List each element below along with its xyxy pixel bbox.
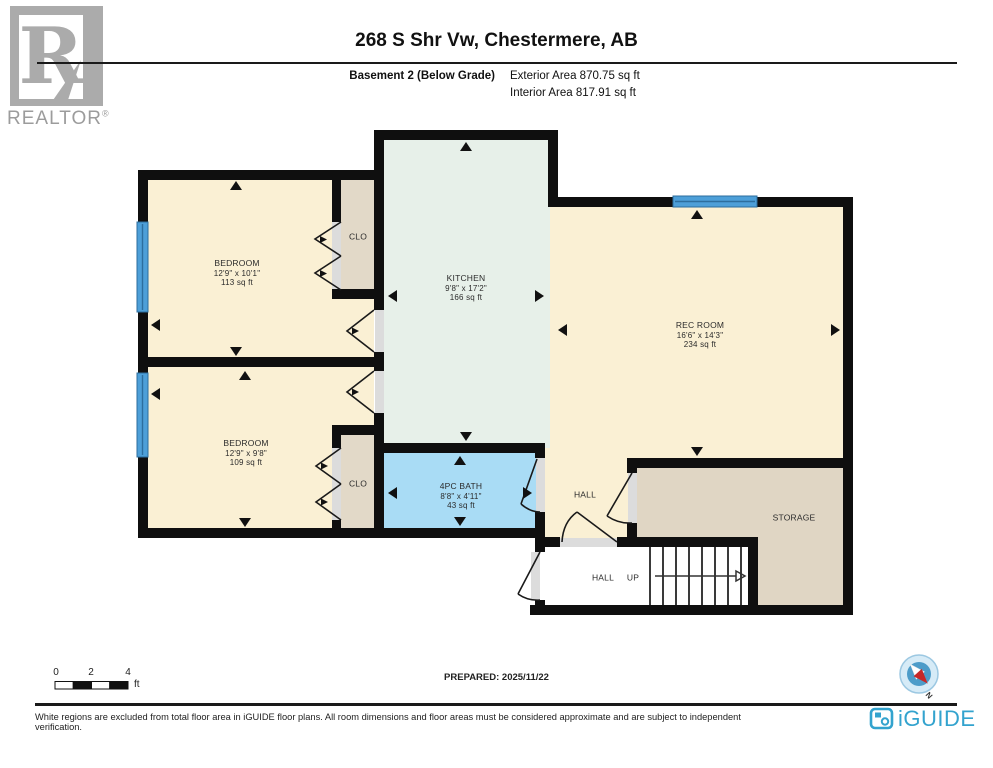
wall [530, 605, 853, 615]
room-name: BEDROOM [214, 259, 260, 269]
prepared-date: PREPARED: 2025/11/22 [0, 672, 993, 683]
room-name: HALL [592, 573, 614, 583]
wall [535, 600, 545, 615]
wall [332, 175, 341, 222]
wall [374, 130, 384, 310]
room-name: STORAGE [773, 513, 816, 523]
wall [138, 357, 384, 367]
room-area: 166 sq ft [445, 293, 487, 303]
wall [138, 528, 384, 538]
room-label-bath: 4PC BATH 8'8" x 4'11" 43 sq ft [440, 482, 483, 511]
room-label-closet-1: CLO [349, 232, 367, 242]
wall [535, 512, 545, 538]
wall [548, 130, 558, 207]
wall [332, 289, 384, 299]
room-dims: 16'6" x 14'3" [676, 330, 724, 340]
floor-plan-page: R REALTOR® 268 S Shr Vw, Chestermere, AB… [0, 0, 993, 768]
room-name: CLO [349, 479, 367, 489]
floor-plan-drawing [0, 0, 993, 768]
wall [627, 458, 853, 468]
iguide-wordmark: iGUIDE [898, 706, 976, 732]
room-label-kitchen: KITCHEN 9'8" x 17'2" 166 sq ft [445, 274, 487, 303]
wall [548, 197, 673, 207]
footer-divider [35, 703, 957, 706]
wall [332, 520, 341, 538]
wall [617, 537, 758, 547]
threshold [375, 310, 384, 352]
room-name: CLO [349, 232, 367, 242]
window [137, 373, 148, 457]
wall [843, 197, 853, 615]
room-label-bedroom-2: BEDROOM 12'9" x 9'8" 109 sq ft [223, 439, 268, 468]
wall [374, 528, 545, 538]
wall [535, 443, 545, 458]
room-area: 109 sq ft [223, 458, 268, 468]
room-label-hall: HALL [574, 490, 596, 500]
iguide-logo: iGUIDE [868, 706, 976, 732]
threshold [628, 473, 637, 523]
room-name: 4PC BATH [440, 482, 483, 492]
room-name: UP [627, 573, 639, 583]
wall [374, 352, 384, 371]
wall [332, 425, 341, 448]
room-label-hall-lower: HALL [592, 573, 614, 583]
room-label-rec-room: REC ROOM 16'6" x 14'3" 234 sq ft [676, 321, 724, 350]
stairs-up-label: UP [627, 573, 639, 583]
wall [374, 443, 545, 453]
footer-disclaimer: White regions are excluded from total fl… [35, 712, 775, 732]
threshold [375, 371, 384, 413]
room-dims: 12'9" x 9'8" [223, 448, 268, 458]
room-area: 43 sq ft [440, 501, 483, 511]
room-area: 234 sq ft [676, 340, 724, 350]
threshold [560, 538, 617, 547]
room-label-closet-2: CLO [349, 479, 367, 489]
room-name: KITCHEN [445, 274, 487, 284]
wall [374, 130, 558, 140]
wall [138, 170, 148, 222]
room-label-storage: STORAGE [773, 513, 816, 523]
wall [627, 458, 637, 473]
room-name: HALL [574, 490, 596, 500]
wall [748, 537, 758, 615]
room-area: 113 sq ft [214, 278, 260, 288]
room-label-bedroom-1: BEDROOM 12'9" x 10'1" 113 sq ft [214, 259, 260, 288]
room-dims: 8'8" x 4'11" [440, 491, 483, 501]
room-name: REC ROOM [676, 321, 724, 331]
room-name: BEDROOM [223, 439, 268, 449]
window [673, 196, 757, 207]
room-dims: 9'8" x 17'2" [445, 283, 487, 293]
window [137, 222, 148, 312]
room-dims: 12'9" x 10'1" [214, 268, 260, 278]
wall [138, 457, 148, 538]
wall [535, 537, 560, 547]
threshold [536, 458, 545, 512]
wall [757, 197, 853, 207]
wall [138, 170, 379, 180]
